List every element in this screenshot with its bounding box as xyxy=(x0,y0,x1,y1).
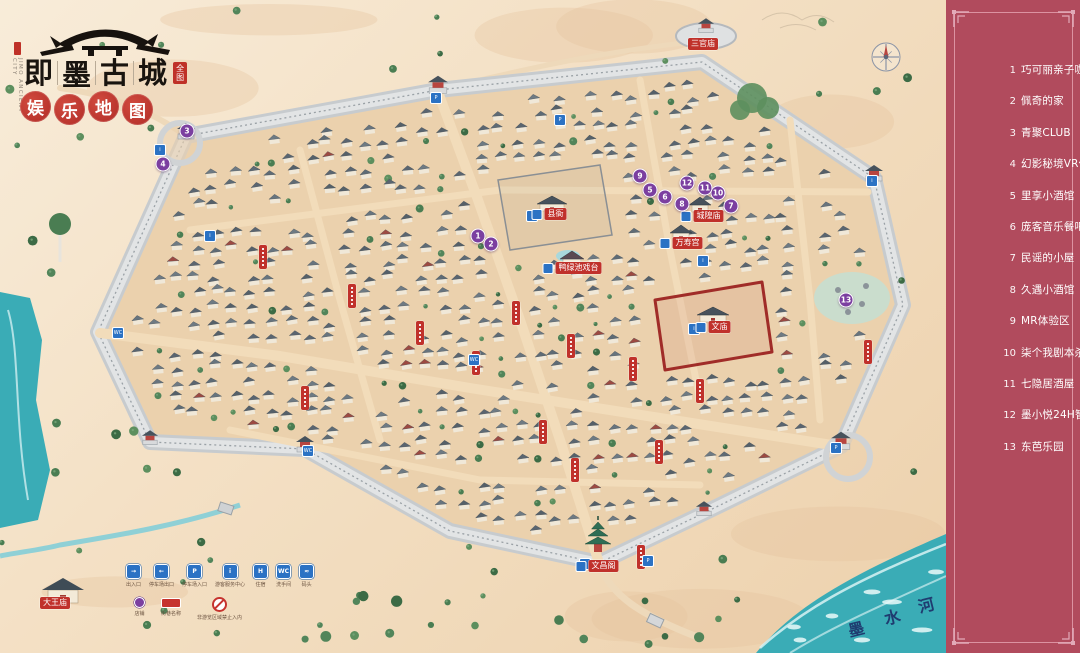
venue-marker-6: 6 xyxy=(658,190,673,205)
venue-number: 11 xyxy=(1001,379,1016,390)
street-name-banner xyxy=(571,458,579,482)
title-divider xyxy=(57,61,58,85)
landmark-facility-icon xyxy=(696,322,707,333)
venue-marker-9: 9 xyxy=(633,169,648,184)
venue-list-item: 7民谣的小屋 xyxy=(1001,250,1078,265)
landmark-facility-icon xyxy=(543,263,554,274)
legend-item: 店铺 xyxy=(134,597,145,617)
legend-item: P停车场入口 xyxy=(182,564,207,588)
street-name-banner xyxy=(416,321,424,345)
venue-number: 4 xyxy=(1001,159,1016,170)
legend-label: 停车场入口 xyxy=(182,581,207,588)
landmark-name: 万寿宫 xyxy=(673,237,703,249)
venue-list-item: 1巧可丽亲子咖啡乐园 xyxy=(1001,62,1078,77)
entrance-icon: → xyxy=(126,564,141,579)
venue-marker-12: 12 xyxy=(680,176,695,191)
map-canvas: JIMO ANCIENT CITY 即墨古城全图 娱乐地图 →出入口←停车场出口… xyxy=(0,0,946,653)
venue-label: 幻影秘境VR体验馆 xyxy=(1021,156,1080,171)
venue-list-sidebar: 1巧可丽亲子咖啡乐园2佩奇的家3青聚CLUB4幻影秘境VR体验馆5里享小酒馆6庞… xyxy=(946,0,1080,653)
venue-list: 1巧可丽亲子咖啡乐园2佩奇的家3青聚CLUB4幻影秘境VR体验馆5里享小酒馆6庞… xyxy=(961,62,1078,470)
restroom-icon: WC xyxy=(276,564,291,579)
facility-icon: P xyxy=(642,555,654,567)
facility-icon: i xyxy=(154,144,166,156)
street-name-banner xyxy=(629,357,637,381)
landmark-label: 文昌阁 xyxy=(576,560,619,572)
venue-label: 东芭乐园 xyxy=(1021,439,1064,454)
facility-icon: WC xyxy=(112,327,124,339)
venue-marker-5: 5 xyxy=(643,183,658,198)
venue-label: 庞客音乐餐吧 xyxy=(1021,219,1080,234)
landmark-label: 大王庙 xyxy=(40,597,70,609)
legend-item: 街巷名称 xyxy=(161,597,181,617)
subtitle-seal-char: 地 xyxy=(88,91,119,122)
street-name-banner xyxy=(259,245,267,269)
landmark-label: 万寿宫 xyxy=(660,237,703,249)
legend-item: 非游览区域禁止入内 xyxy=(197,597,242,621)
legend-label: 非游览区域禁止入内 xyxy=(197,614,242,621)
subtitle-seal-char: 乐 xyxy=(54,94,85,125)
facility-icon: i xyxy=(866,175,878,187)
venue-label: 里享小酒馆 xyxy=(1021,188,1075,203)
legend-label: 街巷名称 xyxy=(161,610,181,617)
landmark-facility-icon xyxy=(660,238,671,249)
venue-number: 6 xyxy=(1001,222,1016,233)
landmark-label: 鸭绿池戏台 xyxy=(543,262,602,274)
legend-label: 出入口 xyxy=(126,581,141,588)
facility-icon: WC xyxy=(468,354,480,366)
landmark-facility-icon xyxy=(681,211,692,222)
legend-label: 店铺 xyxy=(134,610,144,617)
gate-logo-icon xyxy=(36,14,176,58)
info-icon: i xyxy=(223,564,238,579)
landmark-name: 文庙 xyxy=(709,321,731,333)
map-type-title: 娱乐地图 xyxy=(20,91,156,122)
venue-list-item: 6庞客音乐餐吧 xyxy=(1001,219,1078,234)
facility-icon: P xyxy=(430,92,442,104)
facility-icon: P xyxy=(830,442,842,454)
map-legend: →出入口←停车场出口P停车场入口i游客服务中心H住宿WC洗手间≈码头 店铺街巷名… xyxy=(126,564,314,621)
landmark-label: 文庙 xyxy=(696,321,731,333)
frame-corner-ornament xyxy=(952,10,970,28)
entertainment-map-poster: JIMO ANCIENT CITY 即墨古城全图 娱乐地图 →出入口←停车场出口… xyxy=(0,0,1080,653)
hand-drawn-seal: 全图 xyxy=(173,62,187,84)
street-name-banner xyxy=(567,334,575,358)
venue-list-item: 5里享小酒馆 xyxy=(1001,188,1078,203)
landmark-facility-icon xyxy=(532,209,543,220)
venue-number: 12 xyxy=(1001,410,1016,421)
legend-label: 游客服务中心 xyxy=(215,581,245,588)
legend-item: ≈码头 xyxy=(299,564,314,588)
venue-number: 2 xyxy=(1001,96,1016,107)
venue-list-item: 12墨小悦24H智能茶室 xyxy=(1001,407,1078,422)
venue-number: 10 xyxy=(1001,348,1016,359)
venue-label: MR体验区 xyxy=(1021,313,1070,328)
frame-corner-ornament xyxy=(1057,10,1075,28)
street-name-banner xyxy=(348,284,356,308)
venue-number: 9 xyxy=(1001,316,1016,327)
landmark-label: 县衙 xyxy=(532,208,567,220)
landmark-name: 三官庙 xyxy=(688,38,718,50)
frame-corner-ornament xyxy=(1057,627,1075,645)
legend-label: 停车场出口 xyxy=(149,581,174,588)
street-name-banner xyxy=(301,386,309,410)
venue-list-item: 8久遇小酒馆 xyxy=(1001,282,1078,297)
venue-number: 13 xyxy=(1001,442,1016,453)
title-char: 墨 xyxy=(62,61,91,90)
venue-label: 七隐居酒屋 xyxy=(1021,376,1075,391)
landmark-name: 县衙 xyxy=(545,208,567,220)
venue-list-item: 13东芭乐园 xyxy=(1001,439,1078,454)
legend-label: 洗手间 xyxy=(276,581,291,588)
venue-number: 8 xyxy=(1001,285,1016,296)
small-seal-icon xyxy=(14,42,21,55)
venue-number: 7 xyxy=(1001,253,1016,264)
venue-label: 柒个我剧本杀 xyxy=(1021,345,1080,360)
title-char: 古 xyxy=(100,59,129,88)
legend-item: i游客服务中心 xyxy=(215,564,245,588)
title-char: 即 xyxy=(24,59,53,88)
landmark-label: 三官庙 xyxy=(688,38,718,50)
city-name-title: 即墨古城全图 xyxy=(24,54,187,92)
title-divider xyxy=(133,61,134,85)
venue-list-item: 9MR体验区 xyxy=(1001,313,1078,328)
venue-marker-7: 7 xyxy=(724,199,739,214)
venue-label: 巧可丽亲子咖啡乐园 xyxy=(1021,62,1080,77)
hotel-icon: H xyxy=(253,564,268,579)
frame-corner-ornament xyxy=(952,627,970,645)
venue-number: 3 xyxy=(1001,128,1016,139)
venue-list-item: 11七隐居酒屋 xyxy=(1001,376,1078,391)
facility-icon: WC xyxy=(302,445,314,457)
venue-marker-8: 8 xyxy=(675,197,690,212)
venue-list-item: 3青聚CLUB xyxy=(1001,125,1078,140)
facility-icon: i xyxy=(697,255,709,267)
street-name-banner xyxy=(696,379,704,403)
venue-label: 佩奇的家 xyxy=(1021,93,1064,108)
venue-label: 墨小悦24H智能茶室 xyxy=(1021,407,1080,422)
legend-item: WC洗手间 xyxy=(276,564,291,588)
subtitle-seal-char: 娱 xyxy=(20,91,51,122)
legend-item: →出入口 xyxy=(126,564,141,588)
venue-number: 1 xyxy=(1001,65,1016,76)
legend-item: ←停车场出口 xyxy=(149,564,174,588)
venue-label: 民谣的小屋 xyxy=(1021,250,1075,265)
title-char: 城 xyxy=(138,59,167,88)
legend-label: 码头 xyxy=(302,581,312,588)
venue-label: 青聚CLUB xyxy=(1021,125,1071,140)
street-banner-icon xyxy=(161,598,181,608)
venue-list-item: 10柒个我剧本杀 xyxy=(1001,345,1078,360)
dock-icon: ≈ xyxy=(299,564,314,579)
legend-label: 住宿 xyxy=(256,581,266,588)
landmark-name: 鸭绿池戏台 xyxy=(556,262,602,274)
shop-marker-icon xyxy=(134,597,145,608)
title-divider xyxy=(95,61,96,85)
no-entry-icon xyxy=(212,597,227,612)
venue-number: 5 xyxy=(1001,191,1016,202)
map-title-block: JIMO ANCIENT CITY 即墨古城全图 娱乐地图 xyxy=(8,6,208,131)
street-name-banner xyxy=(512,301,520,325)
landmark-facility-icon xyxy=(576,561,587,572)
street-name-banner xyxy=(655,440,663,464)
street-name-banner xyxy=(539,420,547,444)
street-name-banner xyxy=(864,340,872,364)
parking-icon: P xyxy=(187,564,202,579)
landmark-name: 大王庙 xyxy=(40,597,70,609)
facility-icon: i xyxy=(204,230,216,242)
venue-marker-10: 10 xyxy=(711,186,726,201)
parking-exit-icon: ← xyxy=(154,564,169,579)
legend-item: H住宿 xyxy=(253,564,268,588)
landmark-name: 文昌阁 xyxy=(589,560,619,572)
venue-marker-13: 13 xyxy=(839,293,854,308)
venue-list-item: 2佩奇的家 xyxy=(1001,93,1078,108)
subtitle-seal-char: 图 xyxy=(122,94,153,125)
landmark-name: 城隍庙 xyxy=(694,210,724,222)
venue-list-item: 4幻影秘境VR体验馆 xyxy=(1001,156,1078,171)
venue-marker-2: 2 xyxy=(484,237,499,252)
venue-label: 久遇小酒馆 xyxy=(1021,282,1075,297)
landmark-label: 城隍庙 xyxy=(681,210,724,222)
venue-marker-11: 11 xyxy=(698,181,713,196)
venue-marker-4: 4 xyxy=(156,157,171,172)
facility-icon: P xyxy=(554,114,566,126)
